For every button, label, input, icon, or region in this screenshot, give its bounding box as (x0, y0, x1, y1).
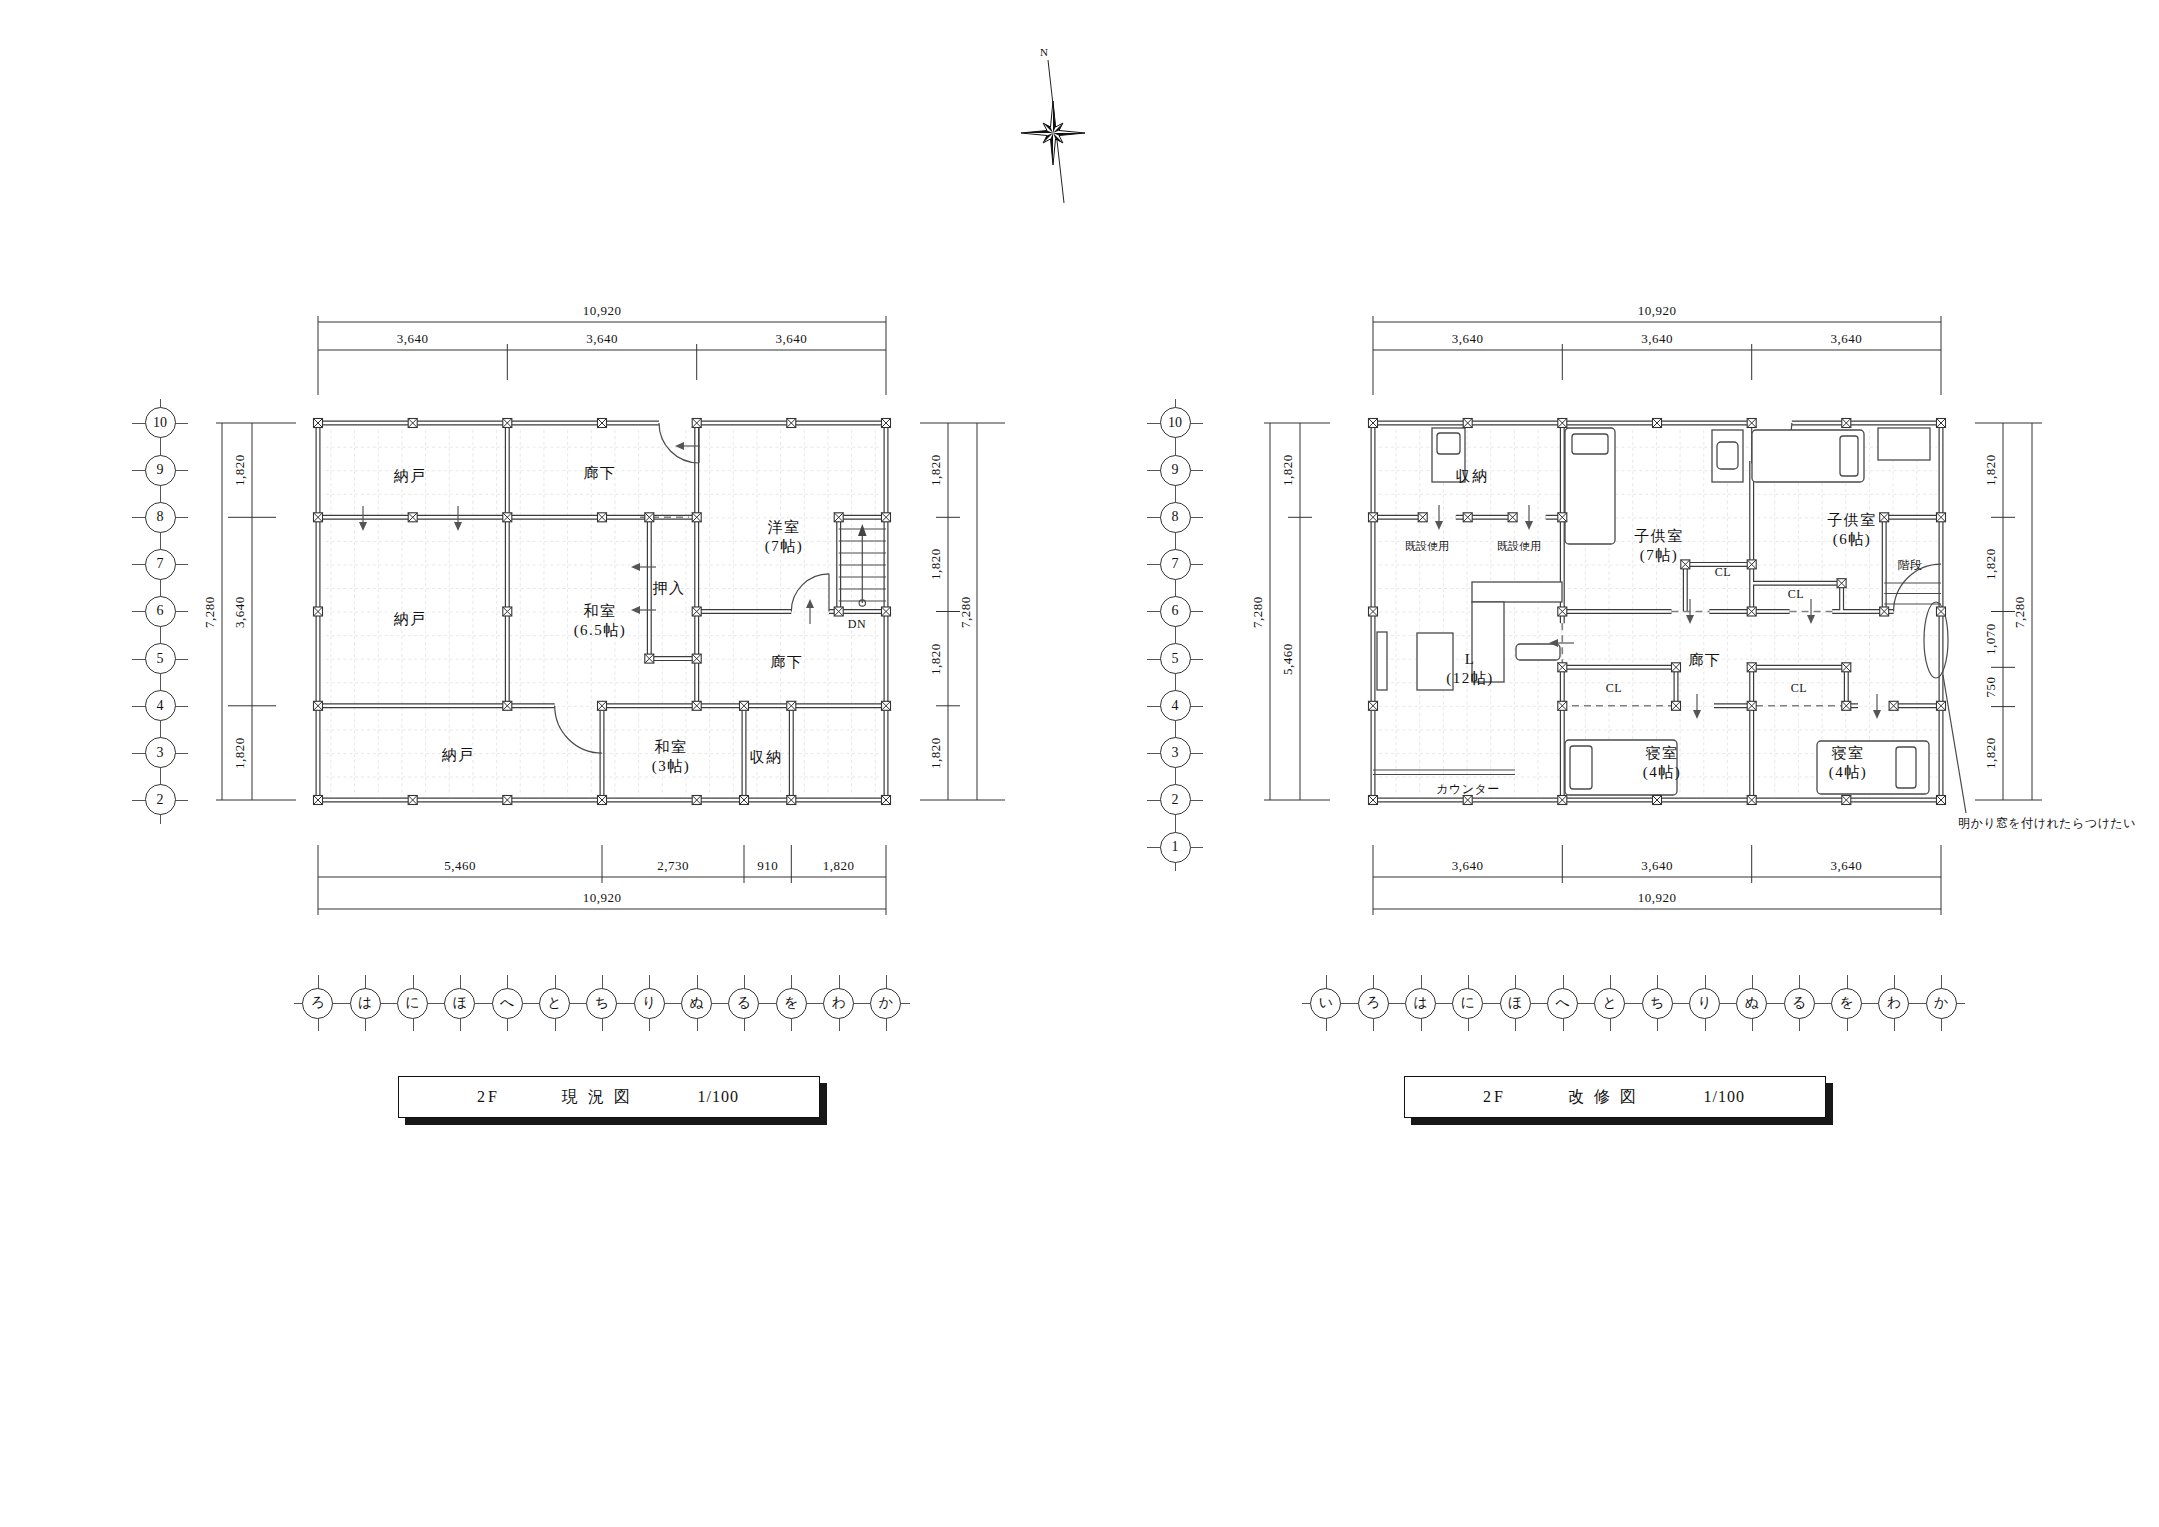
dim-label: 3,640 (1830, 858, 1862, 874)
grid-bubble: を (776, 988, 807, 1019)
grid-bubble: に (397, 988, 428, 1019)
dim-label: 1,820 (232, 454, 248, 486)
grid-bubble: わ (823, 988, 854, 1019)
grid-bubble: 2 (145, 784, 176, 815)
grid-bubble: ほ (444, 988, 475, 1019)
grid-bubble: と (1594, 988, 1625, 1019)
room-label-living: L(12帖) (1446, 650, 1494, 688)
room-label-kodomo6: 子供室(6帖) (1827, 511, 1877, 549)
grid-bubble: は (350, 988, 381, 1019)
dim-label: 7,280 (1250, 596, 1266, 628)
dim-label: 1,820 (1983, 454, 1999, 486)
grid-bubble: ろ (302, 988, 333, 1019)
grid-bubble: 8 (145, 502, 176, 533)
sofa (1472, 582, 1562, 602)
dim-label: 3,640 (586, 331, 618, 347)
room-label-rouka-low: 廊下 (771, 653, 804, 672)
room-label-shinshitsu1: 寝室(4帖) (1643, 744, 1682, 782)
grid-bubble: 3 (145, 737, 176, 768)
grid-bubble: わ (1878, 988, 1909, 1019)
grid-bubble: ろ (1358, 988, 1389, 1019)
dim-label: 2,730 (657, 858, 689, 874)
closet-label-cl3: CL (1606, 681, 1622, 696)
tv-board (1377, 632, 1387, 690)
grid-bubble: 4 (1160, 690, 1191, 721)
counter-label: カウンター (1436, 781, 1500, 798)
grid-bubble: 6 (1160, 596, 1191, 627)
title-floor: 2F (1483, 1088, 1506, 1106)
grid-row-bubbles-current: 1098765432 (137, 399, 183, 823)
note-existing-use-1: 既設使用 (1405, 539, 1449, 554)
room-label-washitsu3: 和室(3帖) (652, 738, 691, 776)
grid-bubble: 3 (1160, 737, 1191, 768)
dim-label: 10,920 (1638, 303, 1677, 319)
room-label-yoshitsu: 洋室(7帖) (765, 518, 804, 556)
grid-bubble: い (1310, 988, 1341, 1019)
grid-bubble: る (1784, 988, 1815, 1019)
dim-label: 1,820 (1280, 454, 1296, 486)
grid-bubble: は (1405, 988, 1436, 1019)
room-label-nando-btm: 納戸 (442, 746, 475, 765)
room-label-kodomo7: 子供室(7帖) (1634, 527, 1684, 565)
dim-label: 7,280 (958, 596, 974, 628)
grid-bubble: 7 (145, 549, 176, 580)
drawing-sheet: N 1098765432 ろはにほへとちりぬるをわか 10987654321 い… (0, 0, 2159, 1527)
dim-label: 750 (1983, 677, 1999, 698)
title-scale: 1/100 (1704, 1088, 1745, 1106)
closet-label-cl4: CL (1791, 681, 1807, 696)
dim-label: 3,640 (1452, 331, 1484, 347)
dim-label: 3,640 (397, 331, 429, 347)
grid-bubble: り (1689, 988, 1720, 1019)
grid-bubble: り (634, 988, 665, 1019)
grid-bubble: 9 (1160, 455, 1191, 486)
grid-bubble: と (539, 988, 570, 1019)
dim-label: 1,820 (1983, 549, 1999, 581)
note-existing-use-2: 既設使用 (1497, 539, 1541, 554)
stairs-dn-label: DN (848, 617, 866, 632)
dim-label: 1,820 (928, 454, 944, 486)
dim-label: 1,820 (232, 737, 248, 769)
compass-north-label: N (1040, 46, 1048, 58)
dim-label: 1,820 (823, 858, 855, 874)
window-annotation-text: 明かり窓を付けれたらつけたい (1958, 815, 2136, 832)
grid-bubble: 10 (1160, 407, 1191, 438)
grid-bubble: 7 (1160, 549, 1191, 580)
dim-label: 10,920 (1638, 890, 1677, 906)
room-label-kaidan: 階段 (1898, 557, 1923, 574)
grid-bubble: 2 (1160, 784, 1191, 815)
dim-label: 10,920 (583, 890, 622, 906)
grid-bubble: 4 (145, 690, 176, 721)
grid-bubble: を (1831, 988, 1862, 1019)
title-block-renovation: 2F 改修図 1/100 (1404, 1076, 1826, 1118)
dim-label: 1,820 (1983, 737, 1999, 769)
dim-label: 7,280 (2012, 596, 2028, 628)
dim-label: 5,460 (1280, 643, 1296, 675)
dim-label: 10,920 (583, 303, 622, 319)
plan-renovation-linework (1264, 316, 2042, 915)
closet-label-cl1: CL (1715, 565, 1731, 580)
closet-label-cl2: CL (1788, 587, 1804, 602)
room-label-shuno: 収納 (750, 748, 783, 767)
dim-label: 3,640 (775, 331, 807, 347)
grid-bubble: 8 (1160, 502, 1191, 533)
desk (1878, 428, 1930, 460)
grid-bubble: る (728, 988, 759, 1019)
dim-label: 3,640 (1641, 858, 1673, 874)
dim-label: 3,640 (1452, 858, 1484, 874)
dim-label: 910 (757, 858, 778, 874)
grid-bubble: 10 (145, 407, 176, 438)
dim-label: 3,640 (232, 596, 248, 628)
title-block-current: 2F 現況図 1/100 (398, 1076, 820, 1118)
grid-col-bubbles-renovation: いろはにほへとちりぬるをわか (1302, 980, 1965, 1026)
dim-label: 3,640 (1830, 331, 1862, 347)
room-label-rouka-top: 廊下 (584, 464, 617, 483)
room-label-rouka-renov: 廊下 (1689, 651, 1722, 670)
dim-label: 1,820 (928, 549, 944, 581)
dim-label: 7,280 (202, 596, 218, 628)
grid-row-bubbles-renovation: 10987654321 (1152, 399, 1198, 870)
dim-label: 5,460 (444, 858, 476, 874)
dim-label: 3,640 (1641, 331, 1673, 347)
title-name: 現況図 (562, 1087, 640, 1108)
grid-bubble: に (1452, 988, 1483, 1019)
room-label-shinshitsu2: 寝室(4帖) (1829, 744, 1868, 782)
grid-bubble: 1 (1160, 832, 1191, 863)
title-floor: 2F (477, 1088, 500, 1106)
grid-bubble: ち (586, 988, 617, 1019)
room-label-nando-mid: 納戸 (394, 610, 427, 629)
grid-bubble: ぬ (681, 988, 712, 1019)
room-label-oshiire: 押入 (653, 579, 686, 598)
dim-label: 1,070 (1983, 624, 1999, 656)
grid-bubble: へ (492, 988, 523, 1019)
room-label-shuno-renov: 収納 (1456, 467, 1489, 486)
grid-bubble: へ (1547, 988, 1578, 1019)
grid-bubble: ち (1642, 988, 1673, 1019)
grid-bubble: 9 (145, 455, 176, 486)
dim-label: 1,820 (928, 737, 944, 769)
title-name: 改修図 (1568, 1087, 1646, 1108)
title-scale: 1/100 (698, 1088, 739, 1106)
grid-bubble: ぬ (1736, 988, 1767, 1019)
grid-bubble: 5 (1160, 643, 1191, 674)
grid-bubble: 5 (145, 643, 176, 674)
room-label-nando-top: 納戸 (394, 467, 427, 486)
grid-bubble: か (1926, 988, 1957, 1019)
grid-col-bubbles-current: ろはにほへとちりぬるをわか (294, 980, 909, 1026)
dim-label: 1,820 (928, 643, 944, 675)
grid-bubble: 6 (145, 596, 176, 627)
grid-bubble: ほ (1500, 988, 1531, 1019)
grid-bubble: か (870, 988, 901, 1019)
compass-rose-icon (1021, 60, 1085, 203)
room-label-washitsu65: 和室(6.5帖) (574, 602, 627, 640)
